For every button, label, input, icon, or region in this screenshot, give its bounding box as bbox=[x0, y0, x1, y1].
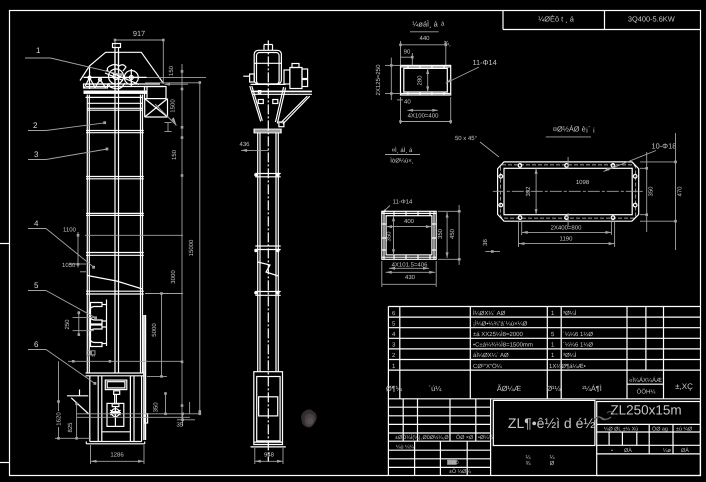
svg-text:36: 36 bbox=[482, 239, 489, 246]
svg-text:350: 350 bbox=[648, 186, 655, 197]
svg-text:ÖØ ag: ÖØ ag bbox=[652, 426, 668, 433]
svg-text:430: 430 bbox=[405, 274, 416, 281]
svg-text:825: 825 bbox=[67, 422, 74, 433]
svg-text:³Ø¼Ì: ³Ø¼Ì bbox=[563, 309, 577, 317]
svg-text:•: • bbox=[611, 448, 613, 454]
svg-text:350: 350 bbox=[437, 228, 444, 239]
svg-text:áÌ¼ØX¼´ AØ: áÌ¼ØX¼´ AØ bbox=[473, 351, 509, 359]
svg-text:3000: 3000 bbox=[170, 270, 177, 284]
svg-text:400: 400 bbox=[404, 218, 415, 225]
svg-text:350: 350 bbox=[386, 231, 393, 242]
svg-text:«Ì¼ÁX¼ÁÆ: «Ì¼ÁX¼ÁÆ bbox=[629, 376, 662, 384]
svg-text:5: 5 bbox=[34, 281, 39, 290]
svg-text:¤Ø½ÁØ è¡´ ¡: ¤Ø½ÁØ è¡´ ¡ bbox=[553, 125, 595, 134]
svg-text:´¼¼6 1¼Ø: ´¼¼6 1¼Ø bbox=[563, 342, 593, 349]
svg-text:¼ø: ¼ø bbox=[663, 448, 671, 454]
svg-text:6: 6 bbox=[34, 340, 39, 349]
svg-text:150: 150 bbox=[168, 65, 175, 76]
svg-text:10-Φ18: 10-Φ18 bbox=[652, 142, 677, 151]
svg-text:ZL¶•ê½ì d é½: ZL¶•ê½ì d é½ bbox=[508, 415, 595, 431]
svg-text:ÃØ¼Æ: ÃØ¼Æ bbox=[497, 384, 522, 393]
svg-text:4: 4 bbox=[34, 219, 39, 228]
svg-text:1500: 1500 bbox=[170, 99, 177, 113]
svg-text:¼ù ¼¼: ¼ù ¼¼ bbox=[396, 445, 414, 451]
svg-text:280: 280 bbox=[417, 75, 424, 86]
svg-text:1620: 1620 bbox=[56, 412, 63, 426]
svg-text:´¼¼6 1¼Ø: ´¼¼6 1¼Ø bbox=[563, 331, 593, 338]
svg-text:±ù ¼Ø: ±ù ¼Ø bbox=[676, 427, 693, 433]
svg-text:11-Φ14: 11-Φ14 bbox=[393, 199, 413, 206]
svg-text:Ø¹¼: Ø¹¼ bbox=[546, 384, 561, 393]
svg-text:ÖÖH¼: ÖÖH¼ bbox=[637, 388, 657, 396]
svg-text:1098: 1098 bbox=[576, 179, 590, 186]
svg-text:³Ø¼Ì: ³Ø¼Ì bbox=[563, 351, 577, 359]
svg-text:4X100=400: 4X100=400 bbox=[408, 113, 440, 120]
svg-text:1286: 1286 bbox=[110, 452, 124, 459]
svg-text:40: 40 bbox=[404, 99, 411, 106]
svg-text:•Ø¼¼: •Ø¼¼ bbox=[478, 435, 494, 441]
svg-text:11-Φ14: 11-Φ14 bbox=[473, 58, 497, 67]
svg-text:917: 917 bbox=[133, 29, 145, 38]
svg-text:Ø: Ø bbox=[550, 460, 555, 467]
svg-text:948: 948 bbox=[264, 452, 275, 459]
svg-text:1190: 1190 bbox=[560, 236, 574, 243]
svg-text:¼ØÈô t ¸ á: ¼ØÈô t ¸ á bbox=[538, 15, 575, 24]
svg-text:1100: 1100 bbox=[63, 227, 77, 234]
svg-text:1X¼Ø¶á¼Æ•: 1X¼Ø¶á¼Æ• bbox=[549, 363, 586, 370]
svg-text:5000: 5000 bbox=[151, 323, 158, 337]
svg-text:¼øáÌ¸ á: ¼øáÌ¸ á bbox=[412, 20, 438, 29]
svg-text:150: 150 bbox=[171, 149, 178, 160]
svg-text:ØÁ: ØÁ bbox=[681, 447, 689, 454]
svg-text:±ØÖ¼Ì(¼): ±ØÖ¼Ì(¼) bbox=[395, 434, 421, 441]
svg-text:436: 436 bbox=[239, 141, 250, 148]
svg-text:²¼Á¶Ì: ²¼Á¶Ì bbox=[582, 384, 602, 393]
svg-text:¼Ø ØL ±¼ Xù: ¼Ø ØL ±¼ Xù bbox=[604, 427, 638, 433]
svg-text:±,XÇ: ±,XÇ bbox=[675, 382, 693, 391]
svg-text:1050: 1050 bbox=[62, 262, 76, 269]
svg-text:±Ö ¼Ø¼: ±Ö ¼Ø¼ bbox=[449, 468, 471, 475]
svg-text:450: 450 bbox=[449, 228, 456, 239]
svg-text:2: 2 bbox=[33, 121, 38, 130]
svg-text:1: 1 bbox=[36, 46, 41, 55]
svg-text:ZL250x15m: ZL250x15m bbox=[610, 403, 681, 418]
svg-text:90: 90 bbox=[404, 49, 411, 56]
svg-text:CØ¹“X“Ö¼: CØ¹“X“Ö¼ bbox=[473, 362, 503, 370]
svg-text:ÌòØ¼ù×¸: ÌòØ¼ù×¸ bbox=[390, 157, 414, 165]
svg-text:350: 350 bbox=[152, 402, 159, 413]
svg-text:Ø¶¼: Ø¶¼ bbox=[386, 384, 403, 393]
svg-text:35: 35 bbox=[176, 421, 183, 428]
svg-text:¡Ì¼Ø•¼¾”á´¼ù×¼Ø: ¡Ì¼Ø•¼¾”á´¼ù×¼Ø bbox=[473, 319, 528, 327]
svg-text:ÖØ ×Ø: ÖØ ×Ø bbox=[456, 434, 474, 441]
svg-text:ØÁ: ØÁ bbox=[624, 447, 632, 454]
svg-text:Ì¼ØX¼´ AØ: Ì¼ØX¼´ AØ bbox=[473, 309, 506, 317]
svg-text:,Ø0Ø½¼,Ø: ,Ø0Ø½¼,Ø bbox=[421, 435, 449, 441]
svg-text:´ú¼: ´ú¼ bbox=[429, 384, 443, 393]
svg-text:2X400=800: 2X400=800 bbox=[551, 225, 583, 232]
svg-text:3: 3 bbox=[34, 150, 39, 159]
svg-text:2X125=250: 2X125=250 bbox=[375, 64, 382, 96]
svg-text:15000: 15000 bbox=[188, 239, 195, 256]
svg-text:•C±á¼¾¼Ì8=1500mm: •C±á¼¾¼Ì8=1500mm bbox=[473, 341, 533, 349]
svg-text:3Q400-5.6KW: 3Q400-5.6KW bbox=[628, 15, 675, 24]
svg-text:¤Ì¸ áÌ¸ á: ¤Ì¸ áÌ¸ á bbox=[392, 146, 413, 154]
svg-text:4X101.5=406: 4X101.5=406 bbox=[392, 261, 429, 268]
svg-text:440: 440 bbox=[419, 35, 430, 42]
svg-text:ÖØÖ: ÖØÖ bbox=[448, 460, 459, 465]
svg-text:50 x 45°: 50 x 45° bbox=[455, 135, 478, 142]
svg-text:250: 250 bbox=[64, 319, 71, 330]
svg-text:470: 470 bbox=[677, 186, 684, 197]
svg-text:±á XX25¼Ì8=2000: ±á XX25¼Ì8=2000 bbox=[473, 330, 523, 338]
svg-text:392: 392 bbox=[525, 186, 532, 197]
